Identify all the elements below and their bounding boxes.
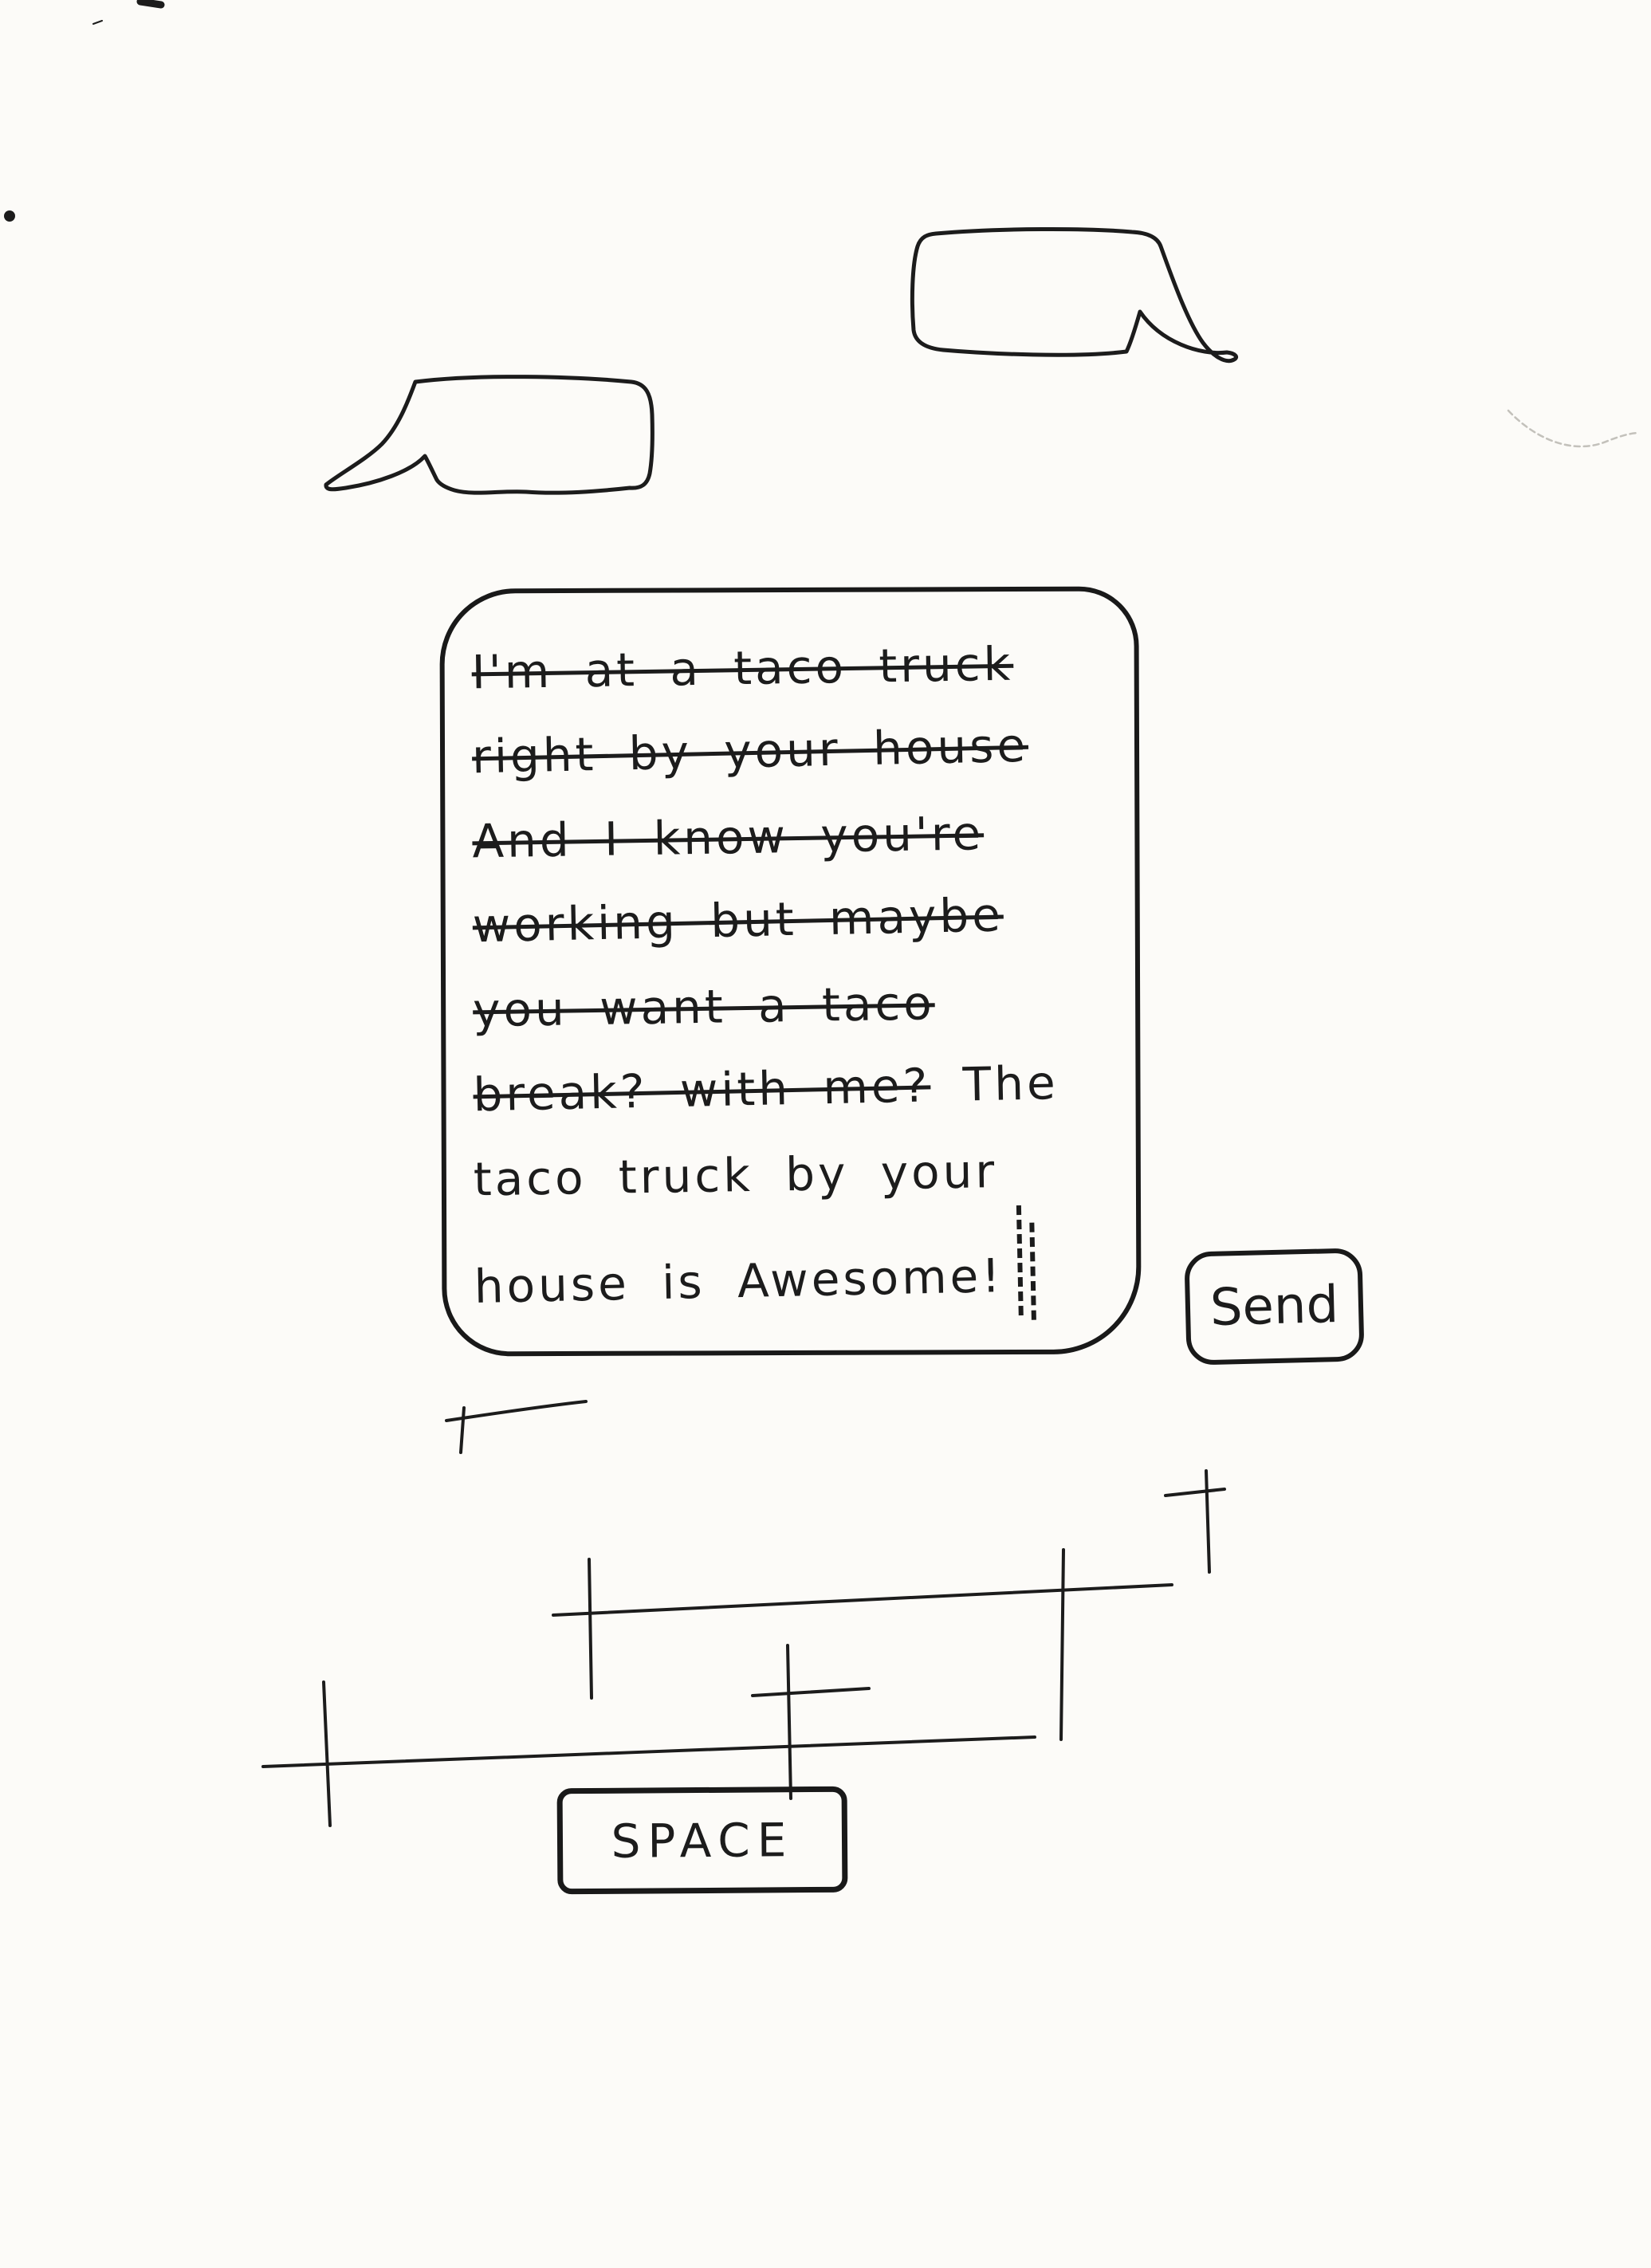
speech-bubble-left [326, 377, 652, 493]
struck-text: right by your house [471, 718, 1028, 784]
key-row-line [446, 1401, 586, 1421]
space-key[interactable]: SPACE [557, 1786, 848, 1895]
key-row-line [553, 1585, 1172, 1615]
message-line: I'm at a taco truck [471, 620, 1114, 715]
message-input[interactable]: I'm at a taco truck right by your house … [439, 586, 1141, 1356]
ink-speck [4, 210, 15, 222]
text-cursor-icon [1016, 1205, 1045, 1342]
message-line: And I know you're [472, 789, 1115, 884]
key-tick [1061, 1550, 1063, 1739]
struck-text: I'm at a taco truck [471, 637, 1014, 700]
page-curl-mark [1508, 411, 1639, 446]
space-key-label: SPACE [611, 1813, 793, 1869]
speech-bubble-right [912, 229, 1236, 360]
key-tick [788, 1645, 791, 1798]
struck-text: working but maybe [472, 887, 1004, 953]
key-tick [589, 1559, 592, 1698]
plain-text: house is Awesome! [474, 1248, 1004, 1314]
struck-text: break? with me? [473, 1058, 931, 1122]
ink-speck [93, 21, 102, 24]
key-tick [1166, 1489, 1224, 1496]
key-tick [753, 1688, 869, 1696]
plain-text: taco truck by your [473, 1144, 997, 1206]
plain-text: The [930, 1055, 1059, 1112]
struck-text: And I know you're [472, 806, 985, 868]
keyboard-sketch-lines [263, 1401, 1224, 1826]
paper-sketch-page: I'm at a taco truck right by your house … [0, 0, 1651, 2268]
key-row-line [263, 1737, 1035, 1767]
message-line: right by your house [471, 702, 1114, 800]
key-tick [461, 1408, 464, 1452]
send-button-label: Send [1209, 1276, 1339, 1338]
struck-text: you want a taco [473, 976, 936, 1037]
message-line: house is Awesome! [473, 1209, 1116, 1307]
key-tick [324, 1682, 330, 1826]
message-line: break? with me? The [472, 1040, 1115, 1138]
ink-speck [140, 2, 161, 5]
key-tick [1206, 1471, 1209, 1572]
message-line: you want a taco [472, 958, 1115, 1053]
send-button[interactable]: Send [1184, 1248, 1364, 1365]
message-line: working but maybe [472, 871, 1115, 969]
